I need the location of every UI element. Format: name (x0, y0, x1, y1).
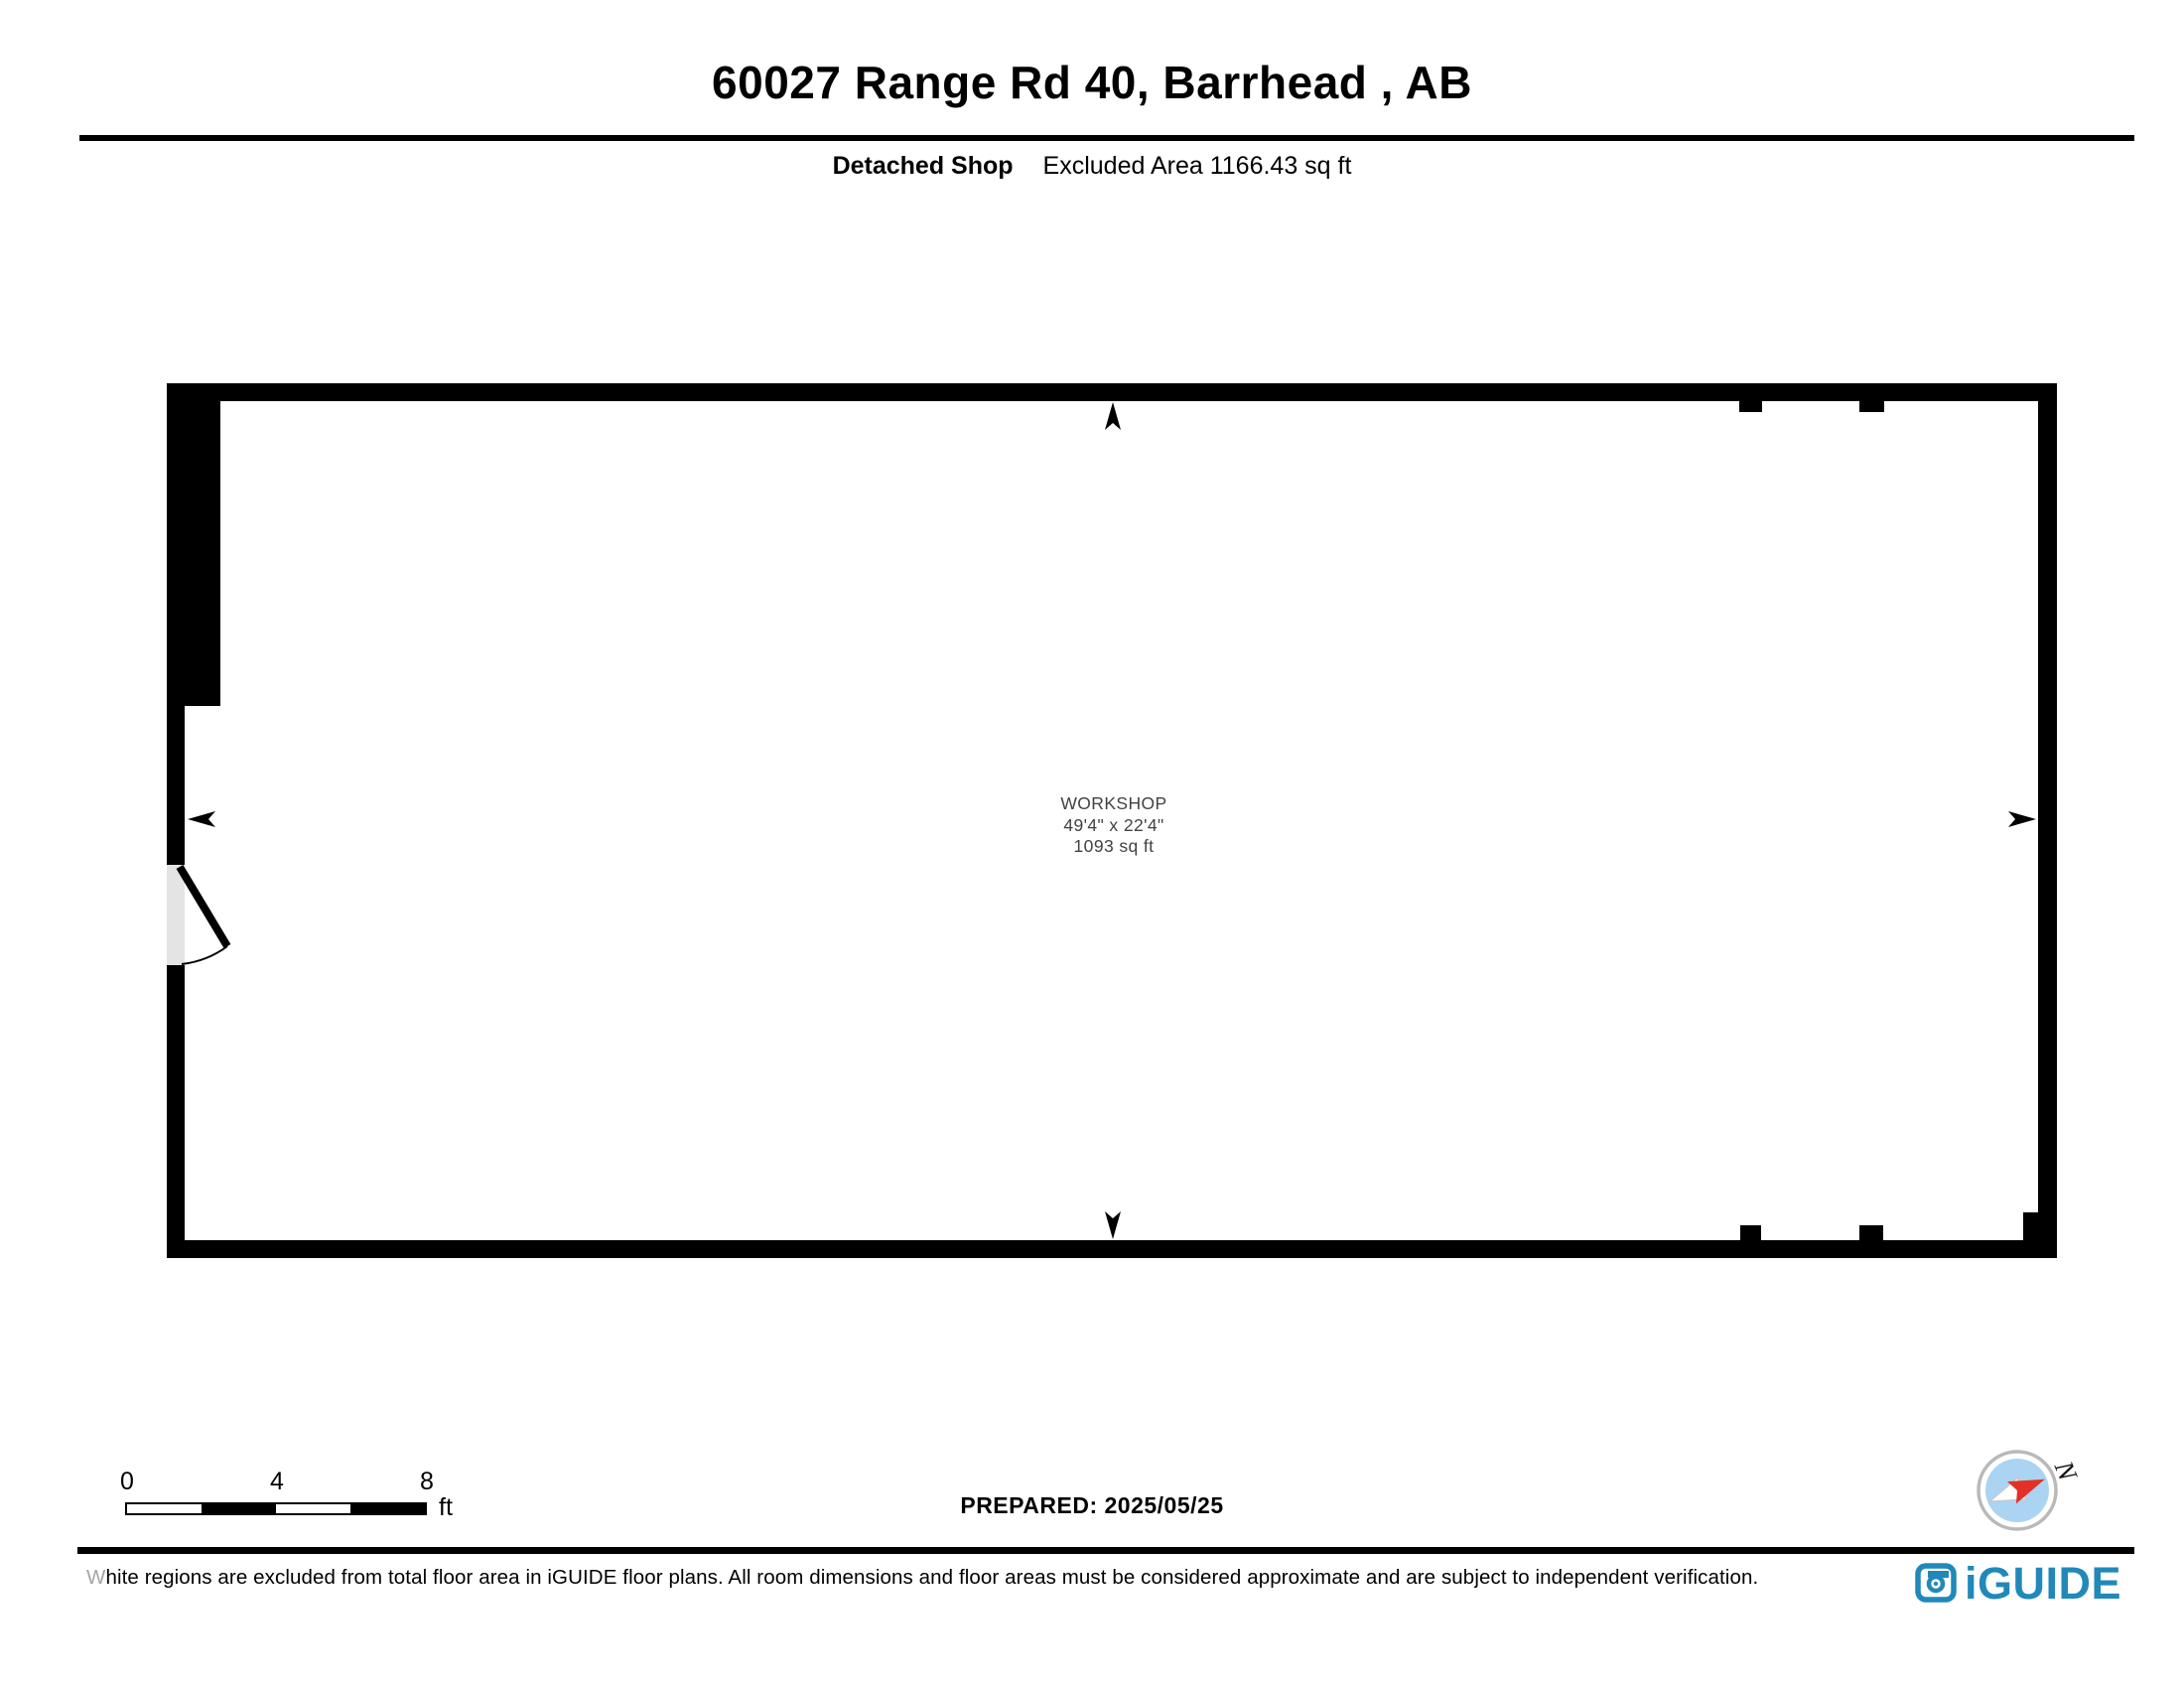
door-leaf (180, 867, 227, 946)
footer-divider (77, 1547, 2134, 1554)
floor-plan-page: 60027 Range Rd 40, Barrhead , AB Detache… (0, 0, 2184, 1688)
door-opening (167, 865, 185, 965)
iguide-logo: iGUIDE (1915, 1562, 2121, 1604)
wall-stub-bottom-1 (1740, 1225, 1761, 1240)
wall-stub-top-1 (1739, 401, 1762, 412)
wall-top (167, 383, 2057, 401)
room-dimensions: 49'4" x 22'4" (1060, 815, 1166, 837)
thick-wall-block-top-left (167, 383, 220, 706)
disclaimer-text: White regions are excluded from total fl… (86, 1566, 1758, 1590)
arrow-east-icon (2008, 811, 2036, 827)
room-name: WORKSHOP (1060, 793, 1166, 815)
prepared-date: PREPARED: 2025/05/25 (0, 1492, 2184, 1519)
arrow-west-icon (188, 811, 215, 827)
arrow-south-icon (1105, 1211, 1121, 1239)
door-swing-arc (182, 946, 227, 964)
entry-door (167, 865, 227, 965)
wall-stub-top-2 (1859, 401, 1884, 412)
room-area: 1093 sq ft (1060, 836, 1166, 858)
wall-right (2038, 383, 2057, 1258)
wall-stub-bottom-2 (1859, 1225, 1883, 1240)
wall-left-lower (167, 965, 185, 1258)
iguide-logo-text: iGUIDE (1965, 1563, 2121, 1604)
room-label: WORKSHOP 49'4" x 22'4" 1093 sq ft (1060, 793, 1166, 858)
wall-bottom (167, 1240, 2057, 1258)
iguide-camera-icon (1915, 1562, 1957, 1604)
arrow-north-icon (1105, 402, 1121, 430)
wall-stub-bottom-right (2023, 1212, 2057, 1240)
